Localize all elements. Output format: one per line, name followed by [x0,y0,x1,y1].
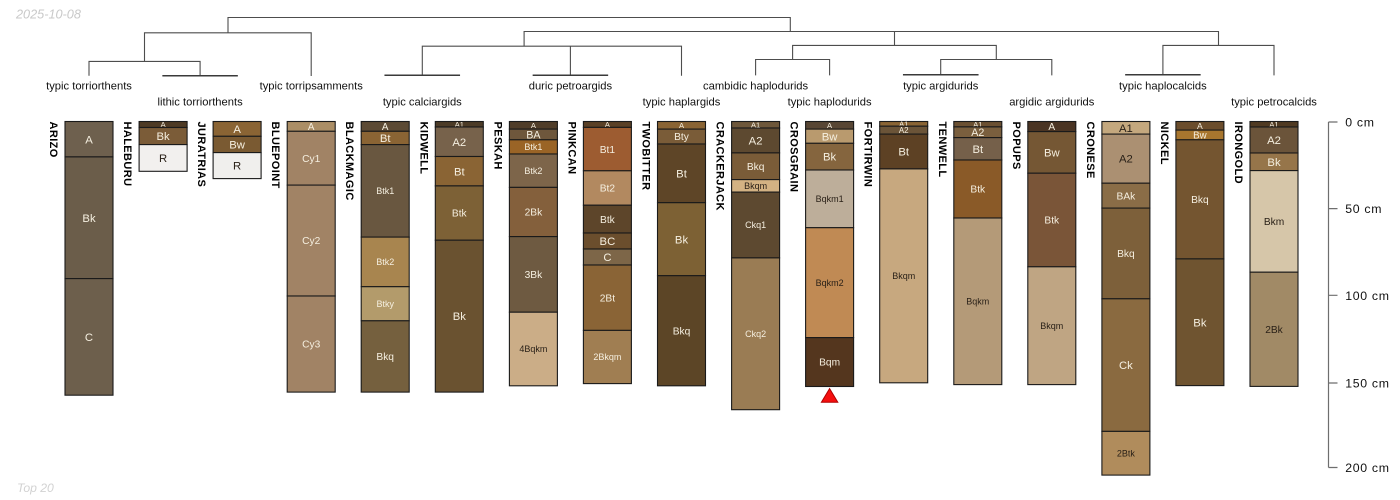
svg-text:BC: BC [600,236,616,248]
svg-text:Ckq2: Ckq2 [745,329,766,339]
svg-text:2Bk: 2Bk [1265,325,1283,336]
svg-text:Btk2: Btk2 [524,166,542,176]
svg-text:Btky: Btky [376,299,394,309]
svg-text:Bk: Bk [157,131,171,143]
svg-text:Btk1: Btk1 [524,142,542,152]
svg-text:PESKAH: PESKAH [491,122,503,170]
svg-text:Btk: Btk [1044,216,1060,227]
svg-text:2Bt: 2Bt [600,293,615,304]
svg-text:BLUEPOINT: BLUEPOINT [269,122,281,189]
svg-text:Bqkm2: Bqkm2 [816,278,844,288]
svg-text:BAk: BAk [1117,191,1137,202]
svg-text:A2: A2 [1267,135,1281,147]
svg-text:Bt: Bt [454,166,466,178]
svg-text:A: A [85,134,93,146]
svg-text:100 cm: 100 cm [1345,289,1390,303]
svg-text:C: C [85,332,93,344]
svg-text:Bw: Bw [229,140,246,152]
svg-text:Btk: Btk [970,185,986,196]
svg-text:3Bk: 3Bk [525,270,543,281]
svg-text:Cy1: Cy1 [302,154,320,165]
svg-text:Cy2: Cy2 [302,236,320,247]
svg-text:POPUPS: POPUPS [1010,122,1022,170]
svg-text:Bkqm: Bkqm [892,271,915,281]
svg-text:2Bkqm: 2Bkqm [593,352,621,362]
svg-text:2Bk: 2Bk [525,208,543,219]
svg-text:Bkq: Bkq [1191,195,1209,206]
svg-text:Btk: Btk [600,215,616,226]
svg-text:Bkq: Bkq [376,352,394,363]
svg-text:Bt: Bt [972,144,984,156]
svg-text:TENWELL: TENWELL [936,122,948,178]
svg-text:CROSGRAIN: CROSGRAIN [788,122,800,193]
svg-text:typic torriorthents: typic torriorthents [46,80,132,92]
svg-text:argidic argidurids: argidic argidurids [1009,97,1095,109]
svg-text:Bt: Bt [676,168,688,180]
svg-text:Bkq: Bkq [1117,249,1135,260]
svg-text:R: R [233,161,241,173]
svg-text:typic haplargids: typic haplargids [643,97,721,109]
svg-text:Bkqm: Bkqm [744,181,767,191]
svg-text:Btk1: Btk1 [376,186,394,196]
svg-text:Bk: Bk [823,152,837,164]
svg-text:0 cm: 0 cm [1345,116,1374,130]
svg-text:PINKCAN: PINKCAN [565,122,577,175]
svg-text:ARIZO: ARIZO [47,122,59,158]
svg-text:Bt: Bt [898,147,910,159]
svg-text:TWOBITTER: TWOBITTER [640,122,652,191]
svg-text:Bkq: Bkq [673,326,691,337]
svg-text:typic haplocalcids: typic haplocalcids [1119,80,1207,92]
svg-text:2Btk: 2Btk [1117,449,1136,459]
svg-text:Bk: Bk [1267,157,1281,169]
svg-text:Btk2: Btk2 [376,257,394,267]
svg-text:Bk: Bk [453,311,467,323]
svg-text:HALEBURU: HALEBURU [121,122,133,187]
svg-text:typic torripsamments: typic torripsamments [260,80,364,92]
svg-text:typic calciargids: typic calciargids [383,97,462,109]
svg-text:Bt2: Bt2 [600,184,616,195]
svg-text:C: C [603,252,611,264]
svg-text:A1: A1 [1119,123,1133,135]
svg-text:200 cm: 200 cm [1345,461,1390,475]
svg-text:4Bqkm: 4Bqkm [519,344,547,354]
svg-text:Bw: Bw [822,131,839,143]
svg-text:Bqkm1: Bqkm1 [816,194,844,204]
svg-text:lithic torriorthents: lithic torriorthents [158,97,244,109]
svg-text:Ck: Ck [1119,360,1133,372]
svg-text:FORTIRWIN: FORTIRWIN [862,122,874,188]
svg-text:duric petroargids: duric petroargids [529,80,613,92]
svg-text:cambidic haplodurids: cambidic haplodurids [703,80,809,92]
svg-text:CRONESE: CRONESE [1084,122,1096,179]
svg-text:Bkq: Bkq [747,162,765,173]
svg-text:Bk: Bk [675,234,689,246]
svg-text:Bkqm: Bkqm [1040,321,1063,331]
svg-text:2025-10-08: 2025-10-08 [15,8,81,22]
svg-text:A2: A2 [749,136,763,148]
svg-text:Bqm: Bqm [819,358,840,369]
svg-text:A: A [1197,121,1203,131]
svg-text:BLACKMAGIC: BLACKMAGIC [343,122,355,201]
svg-text:Bqkm: Bqkm [966,297,989,307]
svg-text:Bkm: Bkm [1264,217,1284,228]
svg-text:A: A [233,124,241,136]
svg-text:JURATRIAS: JURATRIAS [195,122,207,188]
svg-text:Bt1: Bt1 [600,145,616,156]
svg-text:CRACKERJACK: CRACKERJACK [714,122,726,211]
svg-text:Bk: Bk [82,213,96,225]
svg-text:NICKEL: NICKEL [1158,122,1170,165]
svg-text:Bk: Bk [1193,317,1207,329]
svg-text:Bt: Bt [380,133,392,145]
svg-text:typic argidurids: typic argidurids [903,80,979,92]
svg-text:Top 20: Top 20 [17,481,54,495]
svg-text:typic haplodurids: typic haplodurids [788,97,872,109]
svg-text:KIDWELL: KIDWELL [417,122,429,175]
svg-text:A2: A2 [452,137,466,149]
svg-text:Cy3: Cy3 [302,340,320,351]
svg-text:IRONGOLD: IRONGOLD [1232,122,1244,184]
svg-text:Btk: Btk [452,209,468,220]
svg-text:A2: A2 [1119,154,1133,166]
svg-text:Bty: Bty [674,132,690,143]
svg-text:Ckq1: Ckq1 [745,220,766,230]
svg-text:150 cm: 150 cm [1345,377,1390,391]
svg-text:50 cm: 50 cm [1345,202,1382,216]
svg-text:R: R [159,153,167,165]
svg-text:typic petrocalcids: typic petrocalcids [1231,97,1317,109]
svg-text:Bw: Bw [1044,148,1061,160]
